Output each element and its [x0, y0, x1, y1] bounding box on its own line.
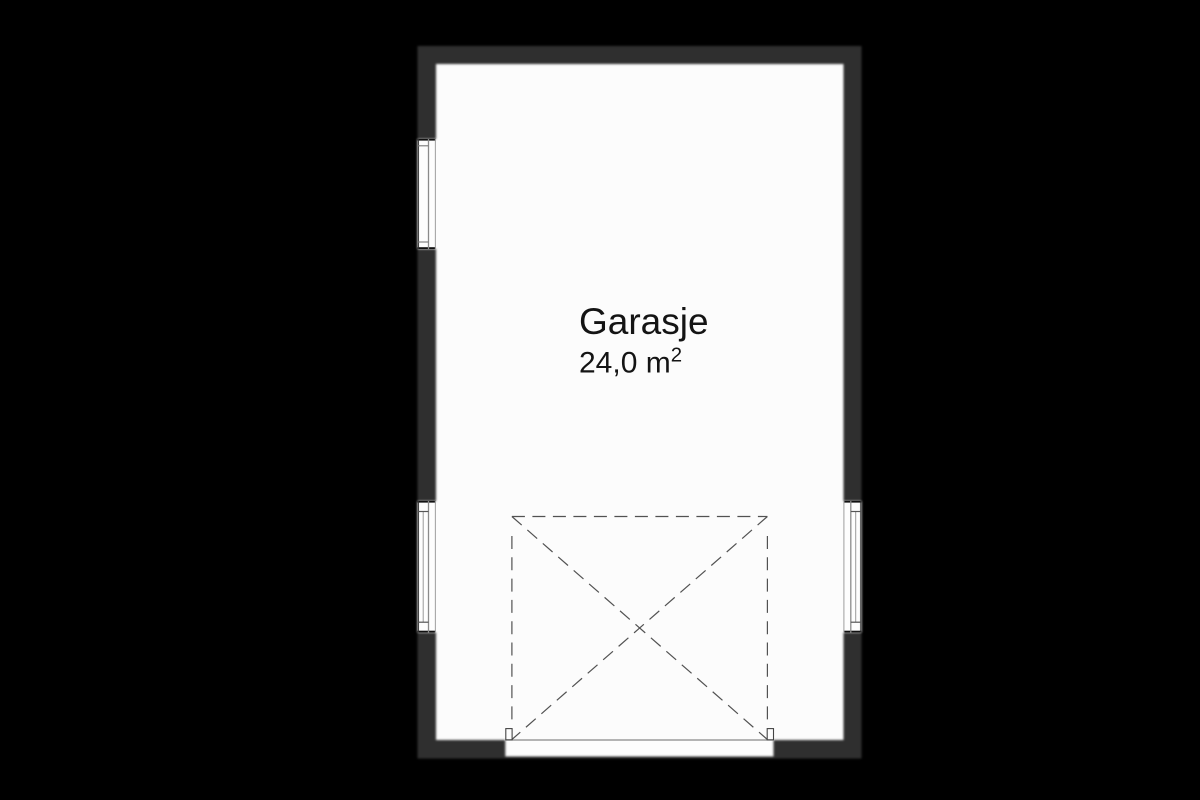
- svg-text:Garasje: Garasje: [579, 301, 709, 342]
- svg-text:24,0 m2: 24,0 m2: [579, 345, 682, 380]
